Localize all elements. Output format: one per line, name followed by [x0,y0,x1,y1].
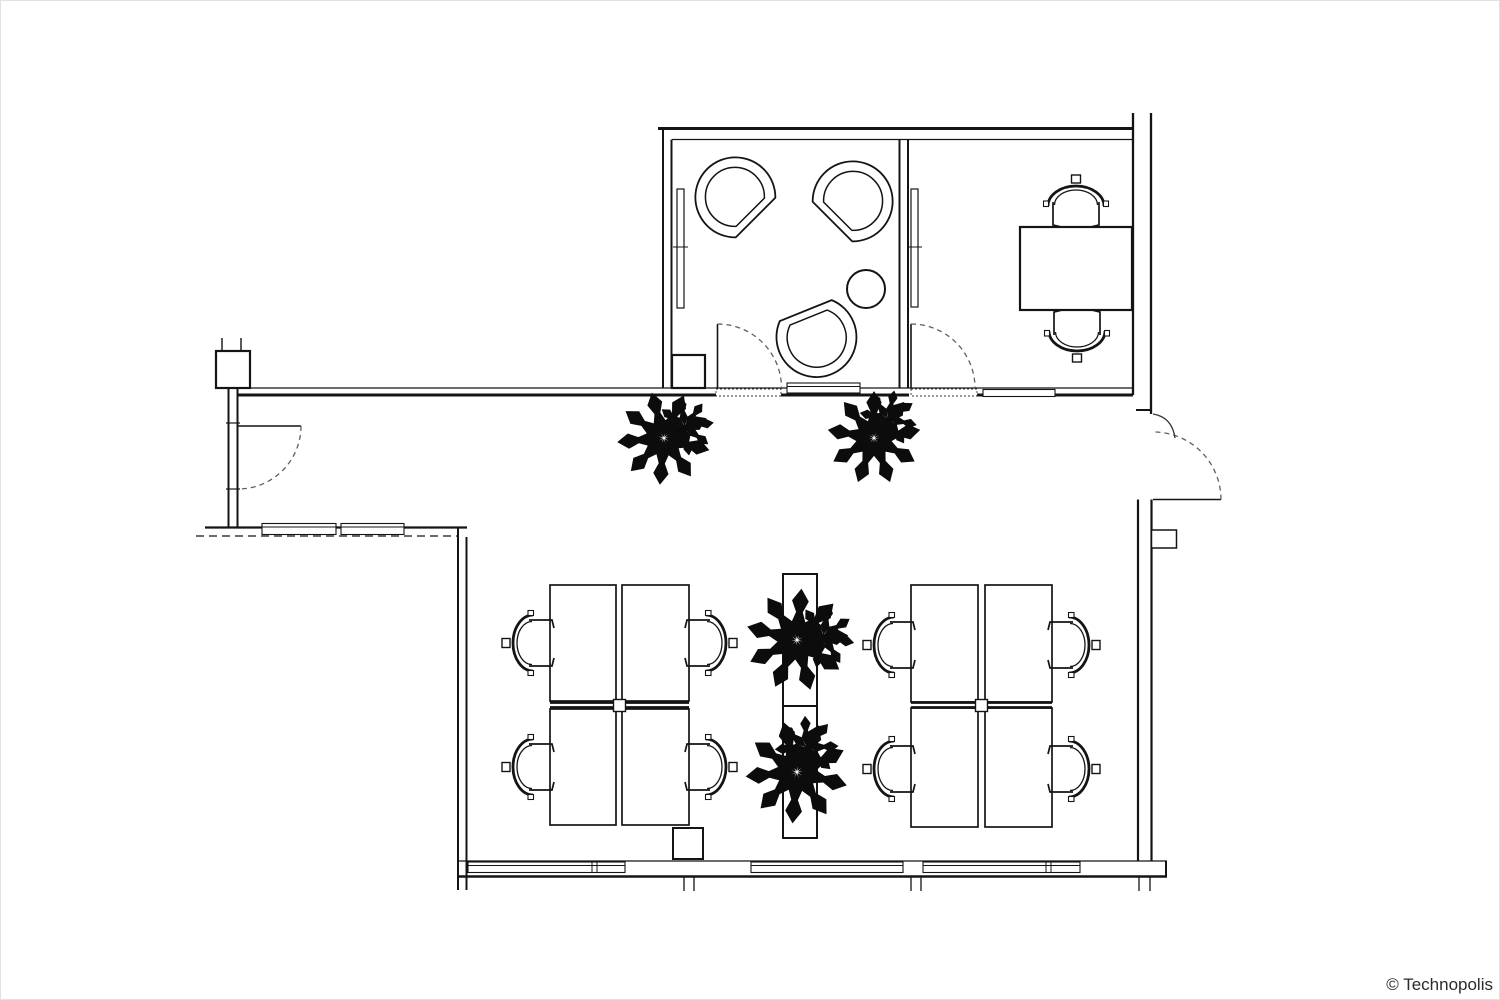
lounge-room-left-wall [663,129,672,389]
task-chair [1048,613,1100,678]
desk [550,709,616,825]
desk [985,585,1052,702]
vestibule-west-wall [226,388,240,527]
room-divider-wall [900,140,909,389]
desk [911,708,978,827]
right-wall-lower [1138,500,1177,862]
floor-plan-page: © Technopolis [0,0,1500,1000]
copyright-label: © Technopolis [1386,975,1493,994]
task-chair [863,613,915,678]
task-chair [863,737,915,802]
task-chair [502,611,554,676]
south-window-3 [923,862,1080,873]
office-room-furniture [907,175,1132,362]
task-chair [1048,737,1100,802]
lounge-chair [679,141,784,246]
lounge-room-furniture [673,141,909,389]
lounge-door-sill [716,389,781,396]
pedestal-cabinet [673,828,703,859]
round-side-table [847,270,885,308]
top-wall [658,129,1133,140]
task-chair [1045,310,1110,362]
lower-left-wall [196,528,467,891]
column [216,338,250,388]
task-chair [685,735,737,800]
task-chair [502,735,554,800]
wall-panel [673,189,688,308]
task-chair [685,611,737,676]
right-wall-upper [1133,113,1151,414]
desk [622,709,689,825]
south-window-2 [751,862,903,873]
desk-cluster-left [502,585,737,825]
vestibule-door [238,426,301,489]
wall-panel [907,189,922,307]
desk [985,708,1052,827]
lounge-room-closet [672,355,705,388]
desk [911,585,978,702]
corridor-window-1 [787,383,860,393]
lounge-room-door [718,324,782,388]
plant [607,374,732,499]
side-exit-door [1153,414,1221,500]
south-window-1 [468,862,625,873]
west-window-1 [262,524,336,535]
desk [550,585,616,701]
office-room-door [911,324,975,388]
desk-cluster-right [863,585,1100,827]
corridor-window-2 [983,390,1055,397]
west-window-2 [341,524,404,535]
task-chair [1044,175,1109,227]
lounge-chair [769,296,869,390]
office-door-sill [911,389,977,396]
desk [622,585,689,701]
lounge-chair [804,145,909,250]
office-desk [1020,227,1132,310]
floor-plan-canvas: © Technopolis [0,0,1500,1000]
